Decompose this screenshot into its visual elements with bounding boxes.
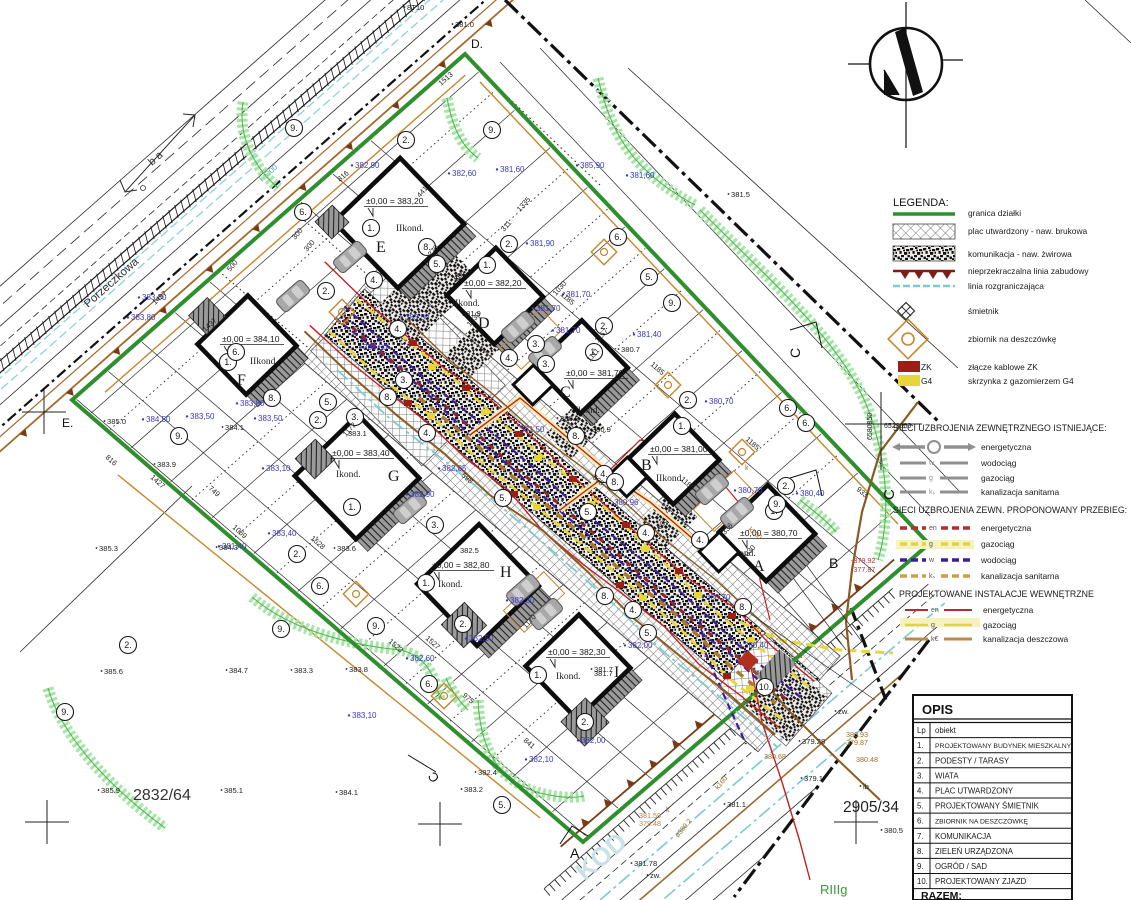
- svg-text:382,85: 382,85: [442, 464, 467, 473]
- svg-text:383.8: 383.8: [349, 665, 368, 674]
- svg-text:±0,00 = 383,40: ±0,00 = 383,40: [332, 448, 390, 458]
- svg-text:±0,00 = 382,80: ±0,00 = 382,80: [432, 560, 490, 570]
- svg-text:k: k: [666, 805, 670, 814]
- svg-text:IIkond.: IIkond.: [656, 474, 684, 484]
- svg-text:381.1: 381.1: [727, 800, 746, 809]
- svg-text:5.: 5.: [324, 397, 332, 407]
- svg-text:381,70: 381,70: [556, 326, 581, 335]
- svg-text:380,70: 380,70: [709, 397, 734, 406]
- svg-text:383,10: 383,10: [352, 711, 377, 720]
- svg-text:383,10: 383,10: [266, 464, 291, 473]
- svg-text:5.: 5.: [499, 493, 507, 503]
- svg-text:385.0: 385.0: [107, 417, 126, 426]
- svg-text:2.: 2.: [124, 640, 132, 650]
- svg-text:A: A: [570, 845, 580, 861]
- svg-text:E: E: [376, 239, 386, 256]
- svg-text:382,60: 382,60: [452, 169, 477, 178]
- svg-text:381,60: 381,60: [630, 171, 655, 180]
- svg-text:379.48: 379.48: [639, 819, 661, 828]
- svg-text:śmietnik: śmietnik: [968, 306, 1000, 316]
- svg-text:gazociąg: gazociąg: [981, 539, 1015, 549]
- svg-text:RAZEM:: RAZEM:: [921, 890, 962, 900]
- svg-text:PLAC UTWARDZONY: PLAC UTWARDZONY: [935, 787, 1014, 796]
- svg-text:382,50: 382,50: [469, 634, 494, 643]
- svg-text:383,50: 383,50: [190, 412, 215, 421]
- svg-text:6.: 6.: [614, 232, 622, 242]
- svg-text:C: C: [881, 489, 898, 500]
- svg-text:385.3: 385.3: [99, 544, 118, 553]
- svg-text:385.1: 385.1: [224, 786, 243, 795]
- svg-text:383,50: 383,50: [405, 313, 430, 322]
- svg-text:ZIELEŃ URZĄDZONA: ZIELEŃ URZĄDZONA: [935, 847, 1014, 856]
- svg-text:1.: 1.: [534, 670, 542, 680]
- svg-text:2.: 2.: [505, 239, 513, 249]
- svg-text:3.: 3.: [917, 771, 924, 780]
- svg-text:zw.: zw.: [650, 871, 661, 880]
- svg-text:IIkond.: IIkond.: [396, 224, 424, 234]
- svg-text:382,00: 382,00: [628, 641, 653, 650]
- svg-text:1.: 1.: [422, 578, 430, 588]
- svg-text:2905/34: 2905/34: [843, 799, 899, 816]
- svg-text:w: w: [928, 557, 935, 564]
- svg-text:k: k: [705, 634, 709, 643]
- svg-text:2.: 2.: [459, 619, 467, 629]
- svg-text:8.: 8.: [917, 847, 924, 856]
- svg-text:383.3: 383.3: [294, 666, 313, 675]
- svg-text:g: g: [929, 541, 933, 548]
- svg-text:energetyczna: energetyczna: [981, 523, 1032, 533]
- svg-text:-377.87: -377.87: [851, 565, 875, 574]
- svg-text:1.: 1.: [367, 223, 375, 233]
- svg-text:383,80: 383,80: [240, 399, 265, 408]
- svg-text:383.2: 383.2: [464, 785, 483, 794]
- svg-text:-379.92: -379.92: [851, 556, 875, 565]
- svg-text:IIkond.: IIkond.: [452, 299, 480, 309]
- svg-text:Ikond.: Ikond.: [438, 580, 463, 590]
- svg-text:F: F: [237, 372, 246, 389]
- svg-text:skrzynka z gazomierzem G4: skrzynka z gazomierzem G4: [968, 376, 1074, 386]
- svg-text:±0,00 = 381,70: ±0,00 = 381,70: [566, 368, 624, 378]
- svg-text:gazociąg: gazociąg: [983, 620, 1017, 630]
- svg-text:2.: 2.: [581, 717, 589, 727]
- svg-text:384.1: 384.1: [339, 788, 358, 797]
- svg-text:385.9: 385.9: [101, 786, 120, 795]
- svg-text:Ikond.: Ikond.: [336, 470, 361, 480]
- svg-text:4.: 4.: [629, 605, 637, 615]
- svg-text:5.: 5.: [433, 259, 441, 269]
- svg-text:10.: 10.: [759, 682, 772, 692]
- svg-text:381,40: 381,40: [637, 330, 662, 339]
- svg-text:382.4: 382.4: [478, 768, 497, 777]
- svg-text:5.: 5.: [917, 802, 924, 811]
- svg-text:6.: 6.: [917, 817, 924, 826]
- svg-text:381.0: 381.0: [455, 20, 474, 29]
- svg-text:±0,00 = 381,00: ±0,00 = 381,00: [650, 444, 708, 454]
- svg-text:G: G: [388, 468, 400, 485]
- svg-text:C: C: [787, 348, 803, 358]
- svg-text:6.: 6.: [784, 403, 792, 413]
- svg-text:wodociąg: wodociąg: [980, 555, 1017, 565]
- svg-text:382,90: 382,90: [410, 490, 435, 499]
- svg-text:k: k: [745, 463, 749, 472]
- svg-text:4.: 4.: [370, 275, 378, 285]
- svg-text:384.3: 384.3: [219, 543, 238, 552]
- svg-text:9.: 9.: [773, 499, 781, 509]
- svg-text:8.: 8.: [384, 392, 392, 402]
- svg-text:en: en: [931, 607, 939, 614]
- svg-text:PROJEKTOWANY ŚMIETNIK: PROJEKTOWANY ŚMIETNIK: [935, 802, 1040, 811]
- svg-text:Ikond.: Ikond.: [556, 672, 581, 682]
- svg-text:8.: 8.: [601, 591, 609, 601]
- svg-text:PODESTY / TARASY: PODESTY / TARASY: [935, 756, 1010, 765]
- svg-text:380,70: 380,70: [706, 593, 731, 602]
- svg-text:PROJEKTOWANE INSTALACJE WEWNĘT: PROJEKTOWANE INSTALACJE WEWNĘTRZNE: [899, 589, 1094, 599]
- svg-text:obiekt: obiekt: [935, 726, 957, 735]
- svg-text:g: g: [929, 475, 933, 482]
- svg-text:380.9: 380.9: [592, 425, 611, 434]
- svg-text:381,70: 381,70: [536, 304, 561, 313]
- svg-text:2.: 2.: [322, 286, 330, 296]
- svg-text:383.9: 383.9: [157, 460, 176, 469]
- svg-text:PROJEKTOWANY ZJAZD: PROJEKTOWANY ZJAZD: [935, 877, 1027, 886]
- svg-text:8T10: 8T10: [407, 3, 424, 12]
- svg-text:6.: 6.: [425, 679, 433, 689]
- svg-text:382.5: 382.5: [460, 546, 479, 555]
- svg-text:9.: 9.: [668, 298, 676, 308]
- svg-text:2.: 2.: [293, 549, 301, 559]
- svg-text:379.87: 379.87: [846, 738, 868, 747]
- svg-text:384,50: 384,50: [146, 415, 171, 424]
- svg-text:B: B: [829, 555, 838, 571]
- svg-text:granica działki: granica działki: [968, 208, 1021, 218]
- svg-text:3.: 3.: [400, 375, 408, 385]
- svg-text:381,60: 381,60: [500, 165, 525, 174]
- svg-text:±0,00 = 382,30: ±0,00 = 382,30: [548, 647, 606, 657]
- svg-text:380,40: 380,40: [744, 641, 769, 650]
- svg-text:plac utwardzony - naw. brukowa: plac utwardzony - naw. brukowa: [968, 226, 1088, 236]
- svg-text:382,90: 382,90: [355, 161, 380, 170]
- svg-text:5.: 5.: [645, 272, 653, 282]
- svg-text:k€: k€: [931, 636, 939, 643]
- svg-text:2.: 2.: [314, 415, 322, 425]
- svg-text:nieprzekraczalna linia zabudow: nieprzekraczalna linia zabudowy: [968, 266, 1089, 276]
- svg-text:5.: 5.: [584, 507, 592, 517]
- svg-text:381.5: 381.5: [731, 190, 750, 199]
- svg-text:5.: 5.: [498, 800, 506, 810]
- svg-text:6.: 6.: [232, 347, 240, 357]
- svg-text:383,30: 383,30: [363, 343, 388, 352]
- svg-text:WIATA: WIATA: [935, 771, 959, 780]
- svg-text:6.: 6.: [802, 418, 810, 428]
- svg-text:9.: 9.: [290, 123, 298, 133]
- svg-text:383.6: 383.6: [337, 544, 356, 553]
- svg-text:wodociąg: wodociąg: [980, 458, 1017, 468]
- svg-text:OPIS: OPIS: [922, 702, 953, 717]
- svg-text:4.: 4.: [696, 535, 704, 545]
- svg-text:4.: 4.: [642, 528, 650, 538]
- svg-text:SIECI UZBROJENIA ZEWNĘTRZNEGO: SIECI UZBROJENIA ZEWNĘTRZNEGO ISTNIEJĄCE…: [893, 423, 1107, 433]
- svg-text:E.: E.: [62, 416, 73, 430]
- svg-text:D.: D.: [471, 37, 483, 51]
- svg-text:C: C: [560, 384, 571, 401]
- svg-text:380.9: 380.9: [560, 414, 579, 423]
- svg-text:3.: 3.: [351, 412, 359, 422]
- svg-text:382,00: 382,00: [581, 736, 606, 745]
- svg-text:383,80: 383,80: [131, 313, 156, 322]
- svg-text:8.: 8.: [268, 393, 276, 403]
- svg-text:380.68: 380.68: [764, 752, 786, 761]
- svg-text:3.: 3.: [431, 520, 439, 530]
- svg-text:382,60: 382,60: [410, 654, 435, 663]
- svg-text:±0,00 = 383,20: ±0,00 = 383,20: [366, 196, 424, 206]
- svg-text:380.48: 380.48: [856, 755, 878, 764]
- svg-text:±0,00 = 384,10: ±0,00 = 384,10: [222, 334, 280, 344]
- svg-text:G4: G4: [921, 376, 933, 386]
- svg-text:4.: 4.: [423, 428, 431, 438]
- svg-text:LEGENDA:: LEGENDA:: [893, 197, 949, 209]
- svg-text:10.: 10.: [917, 877, 928, 886]
- svg-text:Lp: Lp: [917, 726, 926, 735]
- svg-text:kₛ: kₛ: [929, 489, 936, 496]
- svg-text:380,70: 380,70: [738, 486, 763, 495]
- svg-text:2.: 2.: [917, 756, 924, 765]
- svg-text:1.: 1.: [678, 421, 686, 431]
- svg-text:2832/64: 2832/64: [133, 787, 191, 804]
- svg-text:381.78: 381.78: [634, 859, 657, 868]
- svg-text:379.28: 379.28: [802, 737, 825, 746]
- svg-text:379.1: 379.1: [804, 774, 823, 783]
- svg-text:OGRÓD / SAD: OGRÓD / SAD: [935, 862, 987, 871]
- svg-text:1.: 1.: [348, 502, 356, 512]
- svg-text:385.6: 385.6: [104, 667, 123, 676]
- svg-text:g: g: [931, 622, 935, 629]
- svg-text:9.: 9.: [917, 862, 924, 871]
- svg-text:zw.: zw.: [838, 707, 849, 716]
- svg-text:I: I: [614, 664, 619, 681]
- svg-text:6.: 6.: [316, 581, 324, 591]
- svg-text:8.: 8.: [572, 431, 580, 441]
- svg-text:6580850: 6580850: [867, 413, 874, 440]
- svg-text:kanalizacja sanitarna: kanalizacja sanitarna: [981, 487, 1060, 497]
- svg-text:RIIIg: RIIIg: [820, 882, 847, 897]
- svg-text:385,90: 385,90: [580, 161, 605, 170]
- svg-text:1.: 1.: [483, 260, 491, 270]
- svg-text:9.: 9.: [372, 621, 380, 631]
- svg-text:7.: 7.: [917, 832, 924, 841]
- svg-text:±0,00 = 382,20: ±0,00 = 382,20: [464, 278, 522, 288]
- svg-text:2.: 2.: [782, 481, 790, 491]
- svg-text:9.: 9.: [175, 431, 183, 441]
- svg-text:en: en: [929, 525, 937, 532]
- svg-text:380.7: 380.7: [621, 345, 640, 354]
- svg-text:8.: 8.: [739, 602, 747, 612]
- svg-text:IIkond.: IIkond.: [250, 357, 278, 367]
- svg-text:381.7: 381.7: [594, 665, 613, 674]
- svg-text:381,90: 381,90: [530, 239, 555, 248]
- svg-text:1.: 1.: [917, 741, 924, 750]
- svg-text:zbiornik na deszczówkę: zbiornik na deszczówkę: [968, 334, 1057, 344]
- svg-text:KOMUNIKACJA: KOMUNIKACJA: [935, 832, 992, 841]
- svg-text:komunikacja - naw. żwirowa: komunikacja - naw. żwirowa: [968, 249, 1072, 259]
- svg-text:5.: 5.: [644, 628, 652, 638]
- svg-text:ib: ib: [863, 782, 869, 791]
- svg-text:382,30: 382,30: [510, 596, 535, 605]
- svg-text:6.: 6.: [299, 207, 307, 217]
- svg-text:8.: 8.: [611, 477, 619, 487]
- svg-text:9.: 9.: [61, 707, 69, 717]
- svg-text:kanalizacja sanitarna: kanalizacja sanitarna: [981, 571, 1060, 581]
- svg-text:9.: 9.: [488, 125, 496, 135]
- svg-text:energetyczna: energetyczna: [983, 605, 1034, 615]
- svg-text:ZK: ZK: [921, 362, 932, 372]
- svg-text:kₛ: kₛ: [929, 573, 936, 580]
- svg-text:380,96: 380,96: [614, 498, 639, 507]
- svg-text:A: A: [753, 558, 765, 575]
- svg-text:2.: 2.: [684, 395, 692, 405]
- svg-text:4.: 4.: [917, 787, 924, 796]
- svg-text:3.: 3.: [542, 359, 550, 369]
- svg-text:ZBIORNIK NA DESZCZÓWKĘ: ZBIORNIK NA DESZCZÓWKĘ: [935, 817, 1028, 826]
- svg-text:w: w: [928, 460, 935, 467]
- svg-text:9.: 9.: [277, 624, 285, 634]
- svg-text:H: H: [500, 564, 512, 581]
- svg-text:380.5: 380.5: [884, 826, 903, 835]
- svg-text:384.1: 384.1: [225, 423, 244, 432]
- svg-text:383,50: 383,50: [258, 414, 283, 423]
- svg-text:382,10: 382,10: [529, 755, 554, 764]
- svg-text:PROJEKTOWANY BUDYNEK MIESZKALN: PROJEKTOWANY BUDYNEK MIESZKALNY: [935, 743, 1072, 750]
- svg-text:gazociąg: gazociąg: [981, 473, 1015, 483]
- svg-text:4.: 4.: [505, 353, 513, 363]
- svg-text:384.7: 384.7: [229, 666, 248, 675]
- svg-text:energetyczna: energetyczna: [981, 442, 1032, 452]
- svg-text:SIECI UZBROJENIA ZEWN. PROPONO: SIECI UZBROJENIA ZEWN. PROPONOWANY PRZEB…: [893, 505, 1127, 515]
- svg-text:4.: 4.: [394, 324, 402, 334]
- svg-text:2.: 2.: [402, 135, 410, 145]
- svg-text:złącze kablowe ZK: złącze kablowe ZK: [968, 362, 1038, 372]
- svg-text:3.: 3.: [532, 339, 540, 349]
- svg-text:linia rozgraniczająca: linia rozgraniczająca: [968, 281, 1044, 291]
- svg-text:383,40: 383,40: [272, 529, 297, 538]
- svg-text:kanalizacja deszczowa: kanalizacja deszczowa: [983, 634, 1069, 644]
